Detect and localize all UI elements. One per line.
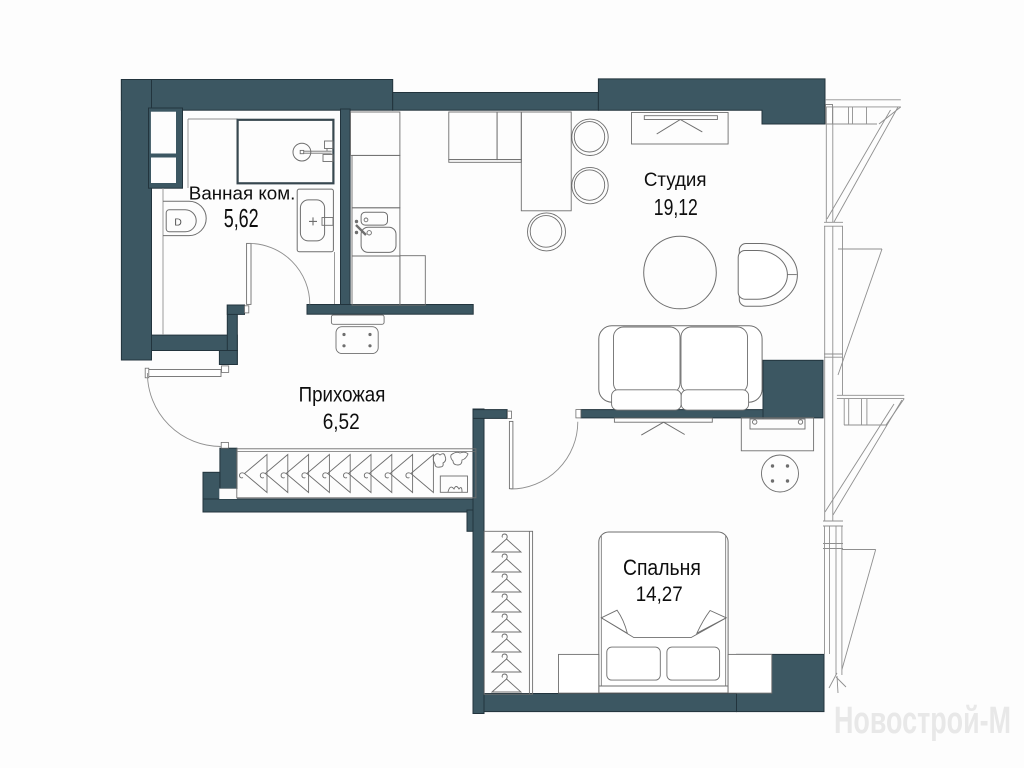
svg-text:Студия: Студия xyxy=(644,170,707,191)
svg-text:6,52: 6,52 xyxy=(323,409,360,434)
svg-text:14,27: 14,27 xyxy=(636,583,683,606)
svg-text:5,62: 5,62 xyxy=(224,205,259,233)
svg-text:Новострой-М: Новострой-М xyxy=(834,700,1011,742)
svg-text:Прихожая: Прихожая xyxy=(299,383,386,406)
svg-text:Ванная ком.: Ванная ком. xyxy=(189,183,296,204)
svg-text:19,12: 19,12 xyxy=(654,194,698,220)
svg-text:D: D xyxy=(174,217,182,229)
svg-text:Спальня: Спальня xyxy=(623,555,701,580)
